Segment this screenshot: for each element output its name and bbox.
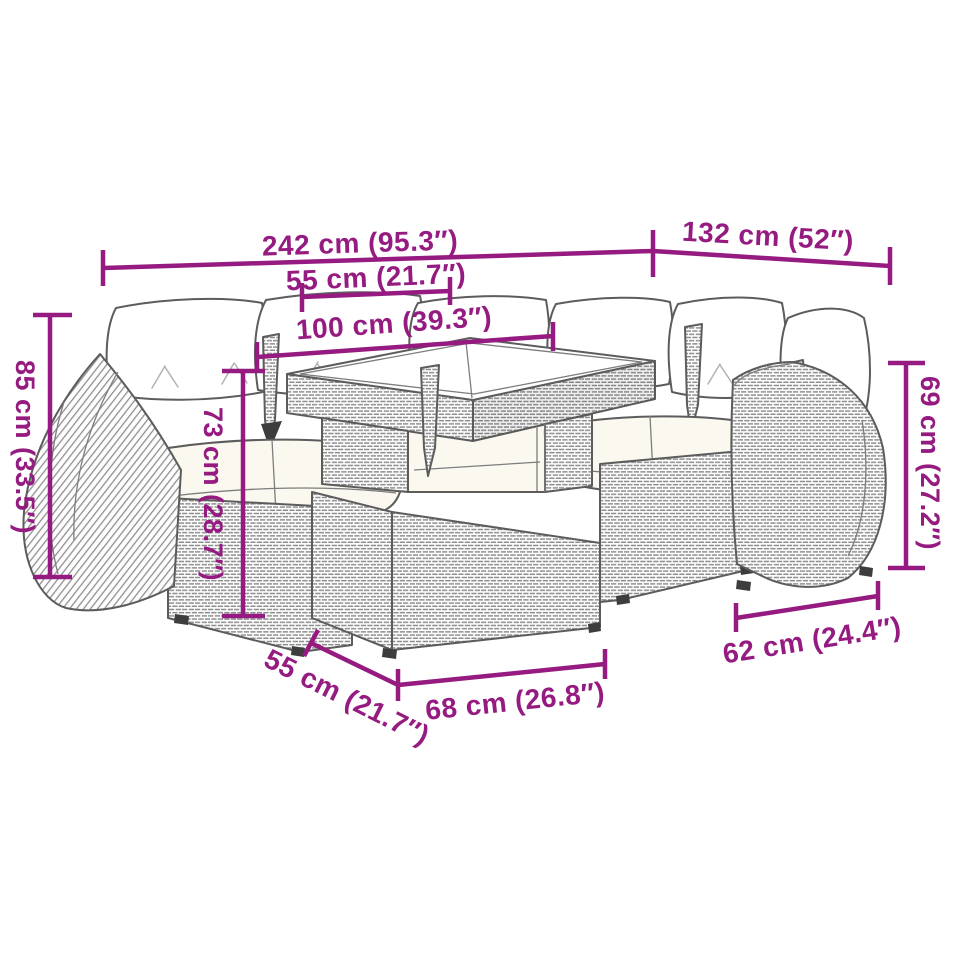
dim-table-height-label: 73 cm (28.7″) <box>198 407 228 581</box>
table-column-right <box>545 414 592 492</box>
dim-armrest-height: 69 cm (27.2″) <box>888 363 945 568</box>
dim-seat-module-width-label: 62 cm (24.4″) <box>721 611 904 670</box>
dim-total-width-label: 242 cm (95.3″) <box>261 224 458 261</box>
dim-corner-depth: 132 cm (52″) <box>653 216 890 285</box>
dim-armrest-height-label: 69 cm (27.2″) <box>915 376 945 550</box>
dim-table-front-width: 68 cm (26.8″) <box>398 649 606 726</box>
dimension-diagram: 242 cm (95.3″) 132 cm (52″) 55 cm (21.7″… <box>0 0 955 955</box>
dim-back-height-label: 85 cm (33.5″) <box>10 360 40 534</box>
dim-table-front-width-label: 68 cm (26.8″) <box>424 676 606 726</box>
garden-furniture-illustration <box>23 292 885 659</box>
dim-seat-module-width: 62 cm (24.4″) <box>721 581 904 669</box>
dim-corner-depth-label: 132 cm (52″) <box>681 216 854 257</box>
table-base-front-face <box>392 512 600 650</box>
table-column-left <box>322 418 408 492</box>
diagram-canvas: 242 cm (95.3″) 132 cm (52″) 55 cm (21.7″… <box>0 0 955 955</box>
